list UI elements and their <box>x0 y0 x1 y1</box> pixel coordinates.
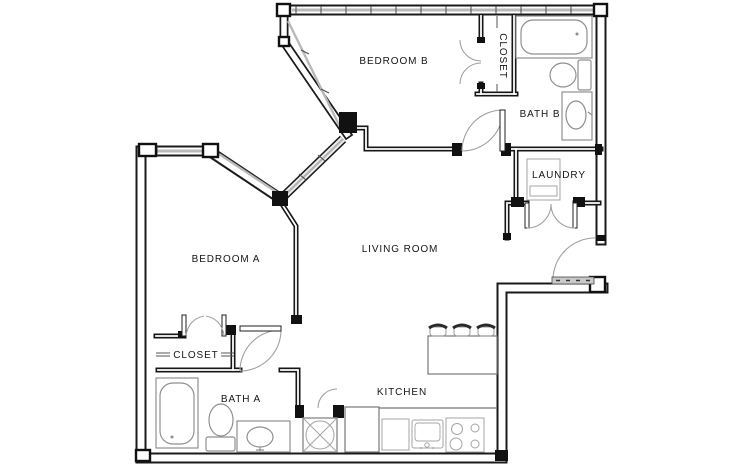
exterior-walls <box>141 10 603 458</box>
window-bedroom-a-diagonal <box>219 154 278 193</box>
interior-walls <box>156 16 601 406</box>
floor-plan-canvas: BEDROOM B CLOSET BATH B LAUNDRY BEDROOM … <box>0 0 740 468</box>
bathtub-b-icon <box>516 16 592 58</box>
door-swing-arc <box>553 238 595 280</box>
door-leaf-laundry-left <box>525 203 529 228</box>
corner-block-bedroom-a-ne <box>203 144 218 157</box>
door-swing-arc <box>527 204 551 228</box>
door-leaf-closet-a-left <box>182 315 186 336</box>
kitchen-island <box>428 336 497 374</box>
corner-block-diagonal-bend <box>279 37 289 46</box>
bar-stool-icon <box>453 325 471 336</box>
toilet-a-icon <box>206 404 235 451</box>
water-heater-icon <box>303 418 337 452</box>
corner-block-top-right <box>594 4 607 16</box>
room-label-closet-b: CLOSET <box>497 33 508 78</box>
bathtub-a-icon <box>156 378 198 448</box>
door-swing-arc <box>460 63 481 84</box>
door-swing-arc <box>462 110 503 151</box>
wall-bedroom-a-east <box>280 201 296 321</box>
kitchen-sink-icon <box>412 420 443 449</box>
door-swing-arc <box>240 330 281 371</box>
room-label-laundry: LAUNDRY <box>532 170 586 181</box>
sink-vanity-b-icon <box>562 92 592 140</box>
door-swing-arc <box>206 316 224 335</box>
door-swing-arc <box>186 316 204 335</box>
room-label-closet-a: CLOSET <box>173 350 218 361</box>
stove-icon <box>446 418 484 452</box>
sink-vanity-a-icon <box>237 421 290 452</box>
entry-threshold <box>552 277 594 284</box>
fixtures <box>156 16 592 452</box>
corner-post-diagonal-north <box>339 112 357 133</box>
room-label-living-room: LIVING ROOM <box>362 244 439 255</box>
door-swing-arc <box>462 110 503 151</box>
doors <box>182 40 595 408</box>
corner-block-bottom-left <box>136 450 150 461</box>
corner-post-diagonal-south <box>272 191 288 206</box>
door-swing-arc <box>240 330 281 371</box>
toilet-b-icon <box>550 60 591 90</box>
corner-block-bedroom-a <box>139 144 156 156</box>
wall-bath-a-hall <box>281 370 298 406</box>
wall-posts <box>136 4 607 461</box>
wall-top-right <box>284 10 601 240</box>
door-swing-arc <box>551 204 575 228</box>
door-leaf-laundry-right <box>573 203 577 228</box>
room-label-bedroom-b: BEDROOM B <box>359 56 428 67</box>
room-label-bedroom-a: BEDROOM A <box>192 254 261 265</box>
glazed-wall-band <box>284 139 343 196</box>
door-leaf-bath-b <box>500 110 505 151</box>
door-swing-arc <box>460 40 481 61</box>
door-leaf-bedroom-a <box>240 326 281 331</box>
floor-plan-drawing: BEDROOM B CLOSET BATH B LAUNDRY BEDROOM … <box>0 0 740 468</box>
room-label-bath-a: BATH A <box>221 394 261 405</box>
room-label-kitchen: KITCHEN <box>377 387 427 398</box>
bar-stool-icon <box>429 325 447 336</box>
refrigerator-icon <box>345 407 379 452</box>
window-bedroom-b-diagonal <box>288 21 341 129</box>
corner-block-bedroom-b <box>277 4 290 16</box>
dishwasher-icon <box>382 419 409 450</box>
bar-stool-icon <box>477 325 495 336</box>
wall-bedroom-b-south <box>352 128 456 149</box>
room-label-bath-b: BATH B <box>520 109 561 120</box>
